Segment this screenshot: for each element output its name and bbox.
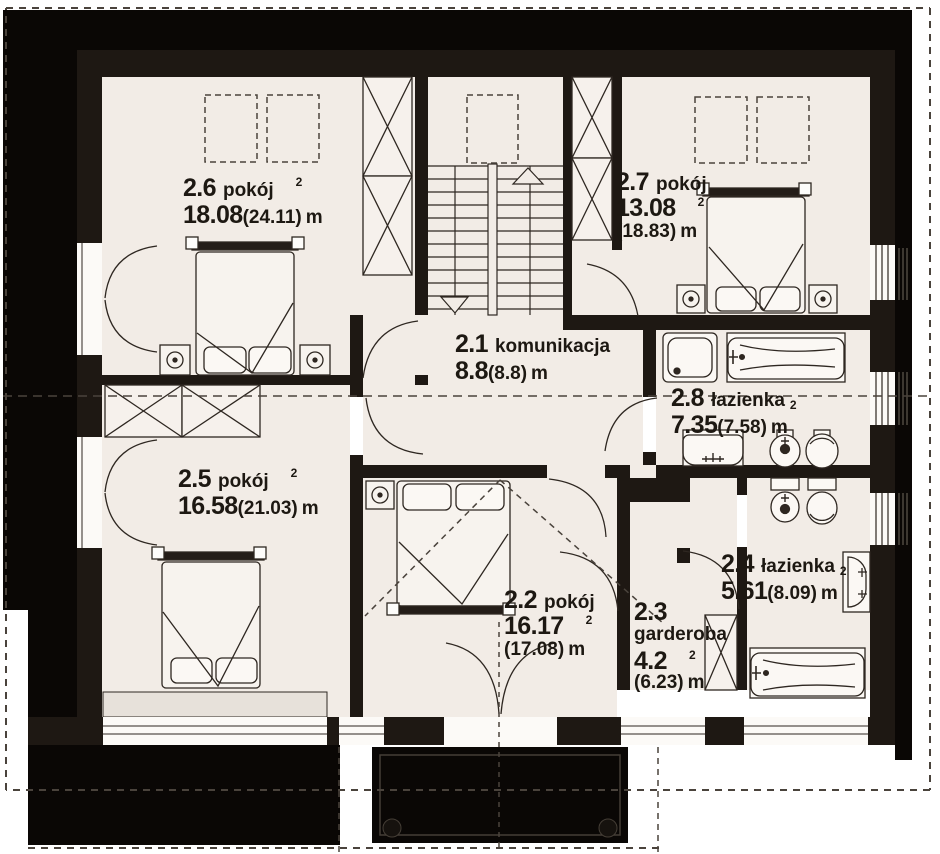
- window-left-2: [77, 437, 102, 548]
- chimney-shaft: [572, 77, 612, 240]
- window-bottom-4: [744, 717, 868, 745]
- window-bottom-1: [103, 717, 327, 745]
- window-left-1: [77, 243, 102, 355]
- window-bottom-3: [621, 717, 705, 745]
- floor-plan-drawing: [0, 0, 940, 854]
- wall-top: [77, 50, 895, 77]
- label-room-2-3: 2.3 garderoba 4.22 (6.23)m: [634, 600, 727, 697]
- label-room-2-2: 2.2pokój 16.172 (17.08)m: [504, 588, 595, 666]
- label-room-2-5: 2.5pokój2 16.58(21.03)m: [178, 467, 319, 521]
- label-room-2-8: 2.8łazienka2 7.35(7.58)m: [671, 386, 797, 440]
- window-bottom-2: [339, 717, 384, 745]
- shower-2-8: [663, 333, 717, 382]
- label-room-2-7: 2.7pokój 13.082 (18.83)m: [616, 170, 707, 248]
- balcony: [372, 747, 628, 843]
- stair-stringer: [488, 164, 497, 315]
- closet-2-6: [363, 77, 412, 275]
- toilet-2-4-b: [807, 478, 837, 524]
- label-room-2-1: 2.1komunikacja 8.8(8.8)m: [455, 332, 610, 386]
- toilet-2-4-a: [771, 478, 799, 522]
- label-room-2-6: 2.6pokój2 18.08(24.11)m: [183, 176, 323, 230]
- bed-2-5: [152, 547, 266, 688]
- wall-left: [77, 50, 102, 717]
- bathtub-2-4: [750, 648, 865, 698]
- washbasin-2-4: [843, 552, 870, 612]
- knee-wall-strip: [103, 692, 327, 717]
- bathtub-2-8: [727, 333, 845, 382]
- closet-2-5: [105, 385, 260, 437]
- floor-plan: 2.6pokój2 18.08(24.11)m 2.7pokój 13.082 …: [0, 0, 940, 854]
- label-room-2-4: 2.4łazienka2 5.61(8.09)m: [721, 552, 847, 606]
